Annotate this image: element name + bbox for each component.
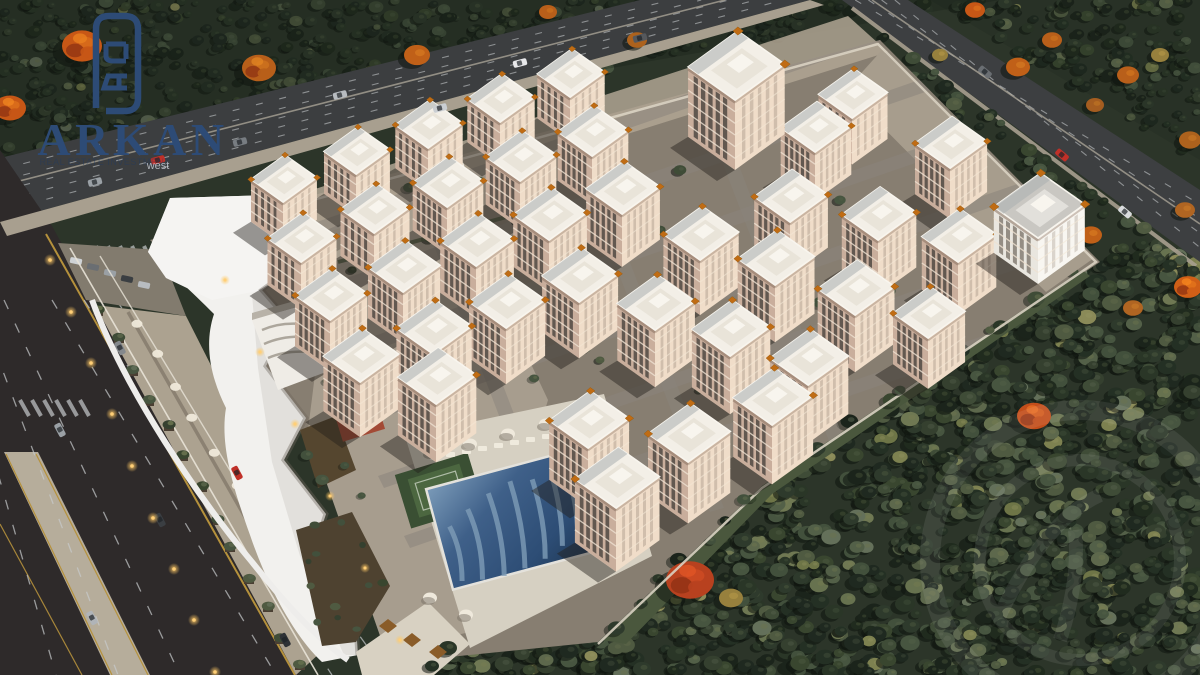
svg-text:west: west [146,160,170,172]
